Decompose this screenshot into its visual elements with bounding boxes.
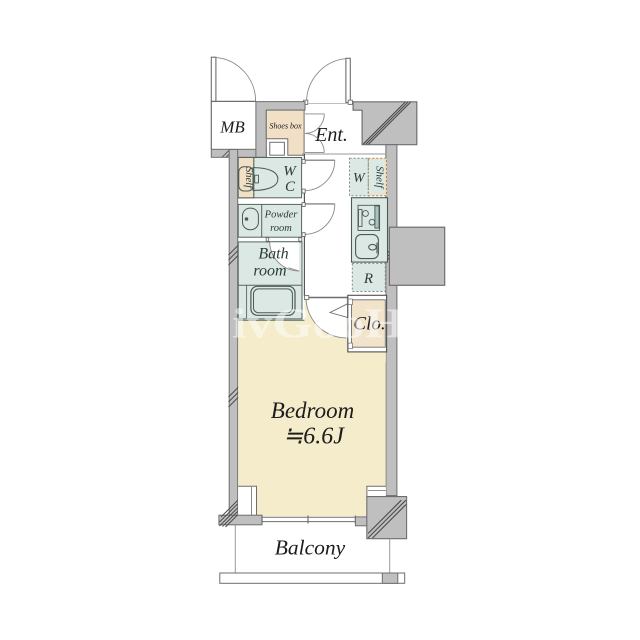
svg-text:room: room <box>253 263 286 280</box>
svg-text:Bath: Bath <box>258 246 288 263</box>
svg-text:Shelf: Shelf <box>243 167 254 190</box>
svg-text:ivGooHoM: ivGooHoM <box>232 302 480 348</box>
svg-text:Powder: Powder <box>264 210 299 221</box>
svg-text:R: R <box>363 271 373 287</box>
svg-text:W: W <box>353 171 366 186</box>
svg-text:room: room <box>270 223 292 234</box>
svg-text:Balcony: Balcony <box>275 536 346 560</box>
svg-text:MB: MB <box>219 118 245 137</box>
svg-text:W: W <box>283 164 297 180</box>
svg-text:Bedroom: Bedroom <box>271 398 354 423</box>
svg-text:≒6.6J: ≒6.6J <box>283 424 345 450</box>
svg-text:Shoes box: Shoes box <box>269 122 302 131</box>
svg-text:Shelf: Shelf <box>374 166 386 190</box>
svg-text:C: C <box>285 179 296 195</box>
